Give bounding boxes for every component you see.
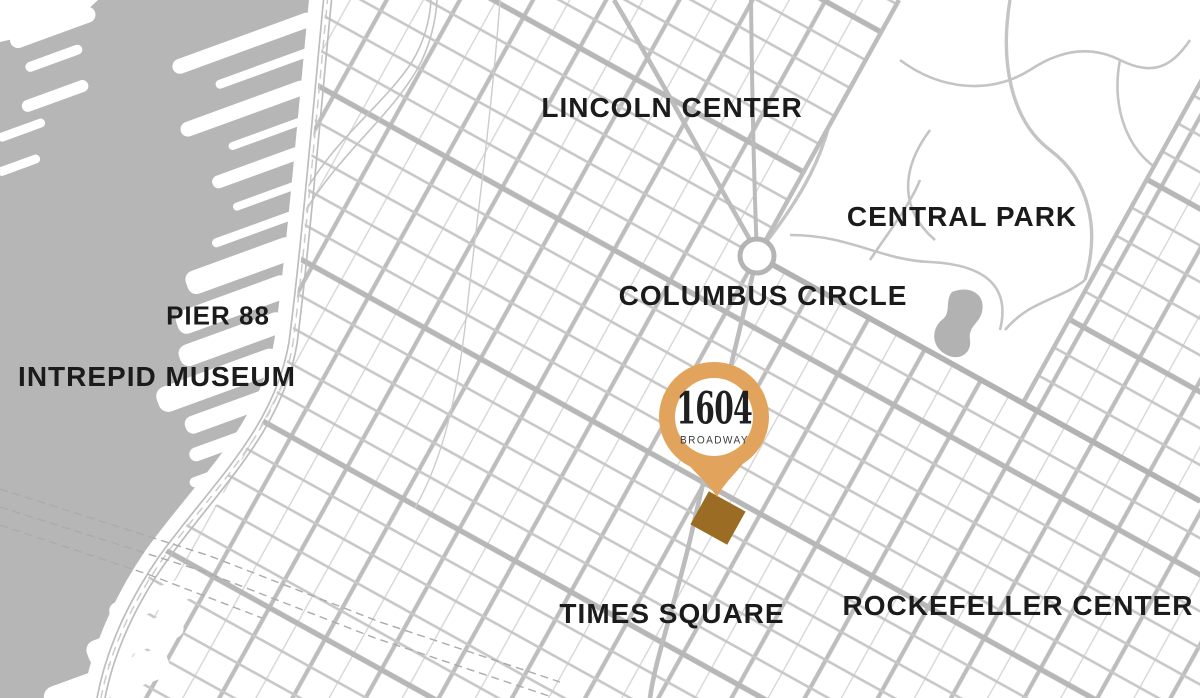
map-canvas: LINCOLN CENTER CENTRAL PARK COLUMBUS CIR… — [0, 0, 1200, 698]
pin-address-number: 1604 — [676, 388, 752, 432]
map-label-pier-88: PIER 88 — [166, 301, 270, 332]
map-label-central-park: CENTRAL PARK — [847, 201, 1077, 233]
pin-street-name: BROADWAY — [680, 435, 749, 447]
map-label-columbus-circle: COLUMBUS CIRCLE — [619, 280, 908, 312]
map-label-times-square: TIMES SQUARE — [559, 598, 784, 630]
map-label-intrepid-museum: INTREPID MUSEUM — [18, 361, 296, 393]
map-label-rockefeller-center: ROCKEFELLER CENTER — [843, 590, 1194, 622]
map-label-lincoln-center: LINCOLN CENTER — [541, 92, 802, 124]
location-pin-label[interactable]: 1604 BROADWAY — [675, 388, 753, 447]
columbus-circle-ring — [740, 239, 774, 273]
